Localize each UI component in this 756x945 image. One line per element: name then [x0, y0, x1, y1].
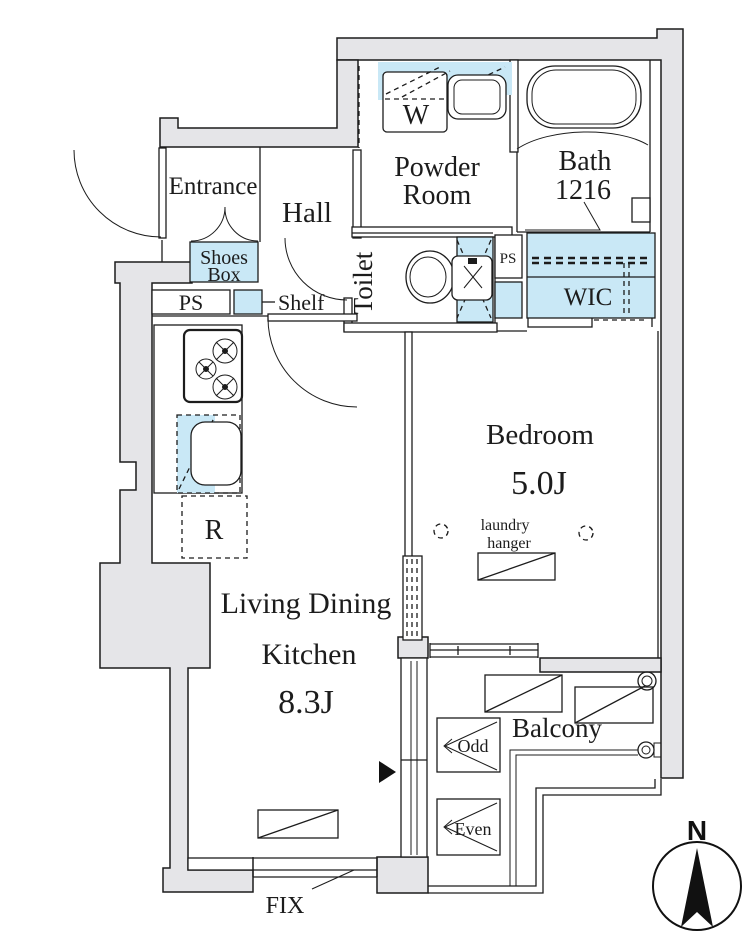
shelf-box — [234, 290, 262, 314]
powder-room-fixtures — [378, 62, 512, 132]
label-bath-size: 1216 — [555, 175, 611, 206]
toilet-bowl — [406, 251, 492, 303]
label-hall: Hall — [282, 197, 332, 229]
laundry-hook-left — [434, 524, 448, 538]
label-odd: Odd — [458, 736, 489, 756]
label-powder-line2: Room — [403, 180, 472, 211]
label-ps-left: PS — [179, 290, 203, 315]
label-ps-right: PS — [500, 251, 517, 267]
laundry-hanger-bar — [478, 553, 555, 580]
balcony-sliding-window — [401, 658, 427, 857]
fix-window — [253, 857, 377, 889]
label-balcony: Balcony — [512, 713, 602, 743]
floor-plan: N Entrance Hall Powder Room Bath 1216 To… — [0, 0, 756, 945]
bedroom-window — [430, 643, 538, 658]
drain-pipe-upper — [638, 742, 661, 758]
label-even: Even — [455, 819, 492, 839]
label-refrigerator: R — [205, 515, 224, 546]
shoes-box-doors — [191, 207, 258, 241]
bath-counter — [632, 198, 650, 222]
toilet-fixtures — [406, 237, 493, 322]
label-laundry-line1: laundry — [481, 517, 530, 534]
wic-lower-cabinet — [495, 282, 522, 318]
label-powder-line1: Powder — [394, 152, 480, 183]
label-shoes-line2: Box — [207, 264, 240, 286]
label-bedroom: Bedroom — [486, 419, 594, 451]
ldk-storage — [258, 810, 338, 838]
entrance-door — [74, 148, 166, 238]
label-laundry-line2: hanger — [487, 535, 531, 552]
balcony-structures — [428, 672, 661, 893]
label-entrance: Entrance — [169, 173, 258, 200]
kitchen-fixtures — [154, 325, 247, 558]
bathtub — [527, 66, 641, 128]
bedroom-sliding-partition — [403, 556, 422, 640]
label-toilet: Toilet — [348, 251, 378, 314]
label-fix: FIX — [266, 893, 305, 919]
label-wic: WIC — [564, 284, 613, 311]
compass-north-label: N — [687, 815, 707, 846]
label-bedroom-size: 5.0J — [511, 465, 567, 502]
label-ldk-size: 8.3J — [278, 684, 334, 721]
laundry-hook-right — [579, 526, 593, 540]
compass: N — [653, 815, 741, 930]
label-ldk-line1: Living Dining — [221, 587, 392, 620]
window-marker-triangle — [379, 761, 396, 783]
kitchen-sink — [177, 415, 241, 493]
label-bath: Bath — [559, 146, 612, 177]
label-ldk-line2: Kitchen — [262, 638, 357, 671]
vanity-sink — [448, 75, 506, 119]
label-shelf: Shelf — [278, 290, 325, 315]
label-washer: W — [403, 100, 430, 131]
balcony-slab-left — [485, 675, 562, 712]
